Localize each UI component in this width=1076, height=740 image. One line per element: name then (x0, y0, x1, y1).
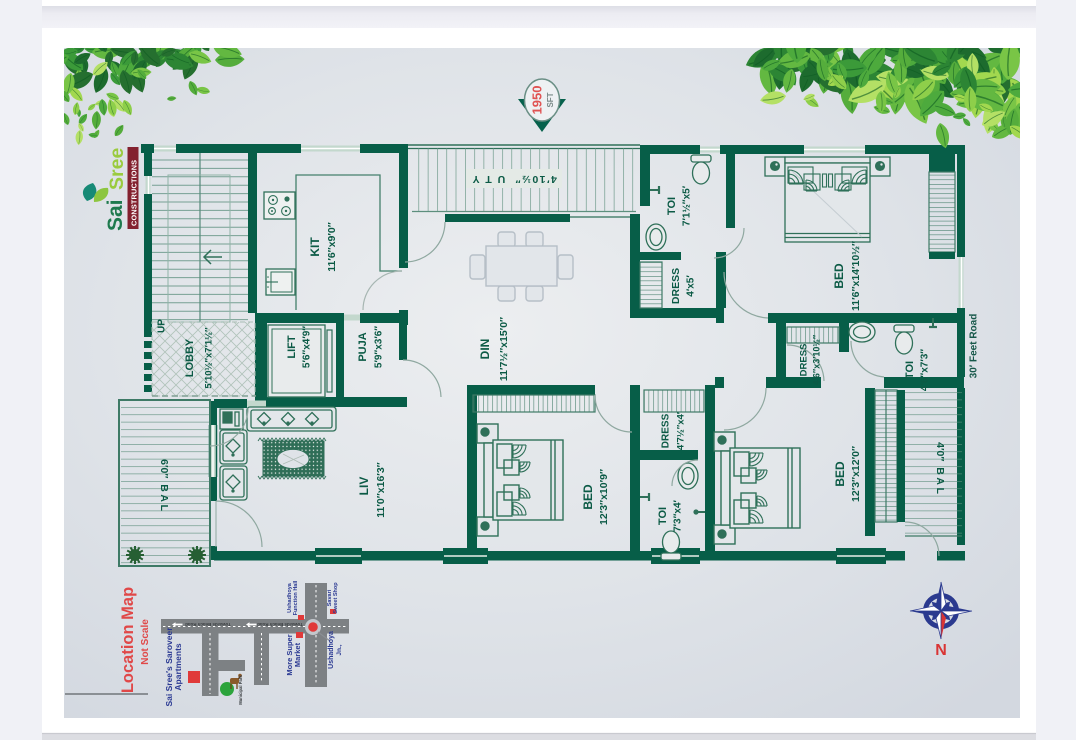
svg-text:Not Scale: Not Scale (140, 619, 151, 665)
svg-text:11′0″x16′3″: 11′0″x16′3″ (375, 462, 387, 517)
svg-text:12′3″x12′0″: 12′3″x12′0″ (850, 446, 862, 502)
svg-text:Sweet Shop: Sweet Shop (333, 582, 339, 614)
svg-text:LOBBY: LOBBY (184, 338, 196, 377)
svg-text:30′ Feet Road: 30′ Feet Road (969, 314, 980, 379)
svg-text:LIV: LIV (357, 477, 371, 496)
svg-text:BED: BED (832, 263, 846, 289)
svg-text:DRESS: DRESS (799, 344, 810, 377)
svg-text:4′x5′: 4′x5′ (686, 275, 697, 297)
svg-text:Function Hall: Function Hall (293, 580, 299, 615)
svg-text:Towards Beach Road: Towards Beach Road (185, 622, 231, 627)
svg-text:4′6″x7′3″: 4′6″x7′3″ (920, 349, 931, 391)
svg-text:4′10½″ U T Y: 4′10½″ U T Y (471, 173, 557, 185)
svg-text:CONSTRUCTIONS: CONSTRUCTIONS (130, 160, 139, 226)
svg-text:TOI: TOI (666, 197, 678, 215)
svg-text:7′1½″x5′: 7′1½″x5′ (682, 185, 693, 226)
svg-text:11′6″x9′0″: 11′6″x9′0″ (326, 222, 338, 272)
svg-text:Jn.,: Jn., (336, 644, 343, 655)
svg-text:12′3″x10′9″: 12′3″x10′9″ (598, 469, 610, 525)
svg-text:PUJA: PUJA (357, 332, 369, 361)
svg-text:5′6″x4′9″: 5′6″x4′9″ (302, 326, 313, 368)
svg-text:Location Map: Location Map (119, 587, 137, 693)
svg-text:Municipal Park: Municipal Park (238, 675, 243, 705)
svg-text:KIT: KIT (308, 237, 322, 257)
svg-text:5′10½″x7′1½″: 5′10½″x7′1½″ (204, 327, 215, 389)
svg-text:11′7½″x15′0″: 11′7½″x15′0″ (498, 317, 510, 381)
svg-text:Sai: Sai (104, 199, 127, 231)
svg-text:Sree: Sree (106, 148, 128, 190)
svg-text:TOI: TOI (657, 507, 669, 525)
svg-text:Ushadhoya: Ushadhoya (328, 631, 335, 669)
svg-text:DRESS: DRESS (670, 268, 682, 304)
svg-text:DIN: DIN (478, 339, 492, 360)
svg-text:Apartments: Apartments (173, 643, 183, 691)
svg-text:4′7½″x4′: 4′7½″x4′ (676, 411, 687, 450)
svg-text:1950: 1950 (529, 86, 544, 115)
svg-text:UP: UP (157, 319, 168, 333)
svg-text:N: N (935, 642, 947, 659)
svg-text:SFT: SFT (546, 92, 555, 107)
svg-text:11′6″x14′10½″: 11′6″x14′10½″ (850, 241, 862, 311)
svg-text:4′6″x3′10½″: 4′6″x3′10½″ (811, 334, 821, 385)
svg-text:DRESS: DRESS (661, 413, 672, 448)
svg-text:4′0″ B A L: 4′0″ B A L (934, 442, 946, 494)
svg-text:BED: BED (833, 461, 847, 487)
svg-text:5′9″x3′6″: 5′9″x3′6″ (374, 326, 385, 368)
svg-text:Towards Beach Road: Towards Beach Road (257, 622, 303, 627)
svg-text:BED: BED (581, 484, 595, 510)
svg-text:7′3″x4′: 7′3″x4′ (673, 499, 684, 531)
svg-text:6′0″ B A L: 6′0″ B A L (158, 459, 170, 511)
svg-text:Market: Market (293, 642, 302, 667)
svg-text:TOI: TOI (904, 361, 916, 379)
svg-text:LIFT: LIFT (286, 335, 298, 358)
